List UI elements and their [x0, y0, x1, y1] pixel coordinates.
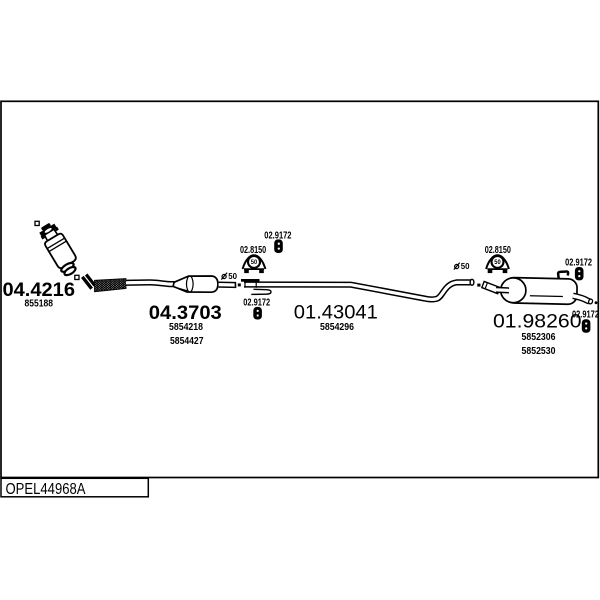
svg-text:50: 50 [251, 259, 258, 266]
svg-text:02.9172: 02.9172 [565, 258, 592, 269]
svg-text:01.98260: 01.98260 [493, 310, 582, 332]
svg-text:50: 50 [494, 259, 501, 266]
svg-text:02.8150: 02.8150 [240, 245, 267, 256]
svg-text:5852530: 5852530 [522, 345, 556, 357]
svg-text:5854218: 5854218 [169, 321, 203, 333]
svg-text:50: 50 [228, 272, 237, 281]
svg-text:50: 50 [461, 262, 470, 271]
svg-text:02.9172: 02.9172 [243, 298, 270, 309]
svg-text:02.8150: 02.8150 [485, 245, 512, 256]
svg-text:855188: 855188 [25, 298, 54, 310]
svg-text:OPEL44968A: OPEL44968A [6, 481, 86, 498]
svg-text:02.9172: 02.9172 [264, 230, 292, 241]
svg-text:5854296: 5854296 [320, 321, 354, 333]
svg-text:5852306: 5852306 [522, 331, 556, 343]
svg-text:5854427: 5854427 [170, 335, 204, 347]
